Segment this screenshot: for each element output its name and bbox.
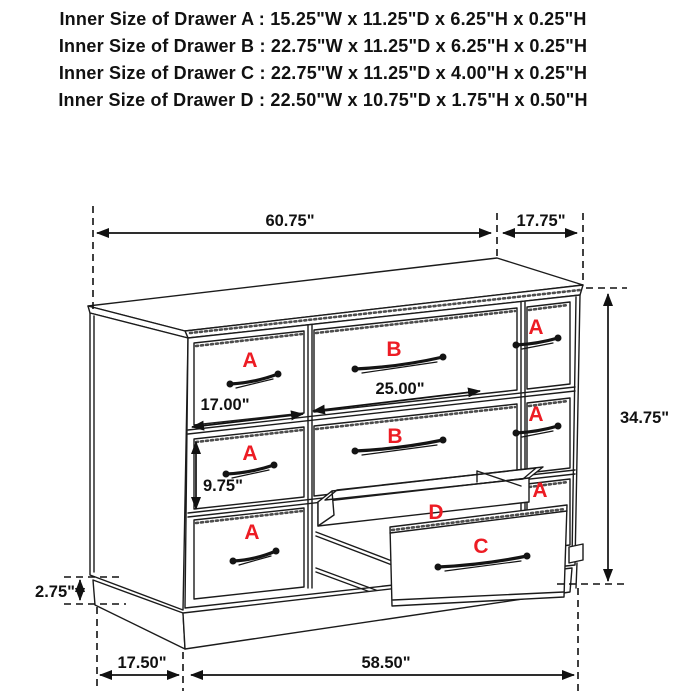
product-dimension-sheet: Inner Size of Drawer A : 15.25"W x 11.25… xyxy=(0,0,700,700)
dresser-dimension-diagram: A B A A B A A A D C xyxy=(0,0,700,700)
dimension-base-depth: 17.50" xyxy=(100,654,179,675)
drawer-a-label: A xyxy=(528,316,543,339)
top-depth-value: 17.75" xyxy=(516,212,565,230)
dimension-top-depth: 17.75" xyxy=(503,212,577,233)
drawer-d-label: D xyxy=(428,501,443,524)
dimension-base-height: 2.75" xyxy=(35,580,80,601)
base-height-value: 2.75" xyxy=(35,583,75,601)
drawer-a-label: A xyxy=(528,403,543,426)
base-width-value: 58.50" xyxy=(361,654,410,672)
base-depth-value: 17.50" xyxy=(117,654,166,672)
drawer-a-height-value: 9.75" xyxy=(203,477,243,495)
top-width-value: 60.75" xyxy=(265,212,314,230)
drawer-a-label: A xyxy=(242,442,257,465)
cabinet-left-side xyxy=(90,313,188,610)
drawer-c-label: C xyxy=(473,535,488,558)
height-value: 34.75" xyxy=(620,409,669,427)
drawer-a-label: A xyxy=(532,479,547,502)
dimension-top-width: 60.75" xyxy=(97,212,491,233)
dimension-base-width: 58.50" xyxy=(191,654,574,675)
dimension-height: 34.75" xyxy=(608,294,669,581)
drawer-a-width-value: 17.00" xyxy=(200,396,249,414)
drawer-a-label: A xyxy=(244,521,259,544)
drawer-a-label: A xyxy=(242,349,257,372)
drawer-b-label: B xyxy=(387,425,402,448)
drawer-b-width-value: 25.00" xyxy=(375,380,424,398)
drawer-b-label: B xyxy=(386,338,401,361)
dresser-drawing: A B A A B A A A D C xyxy=(88,258,583,649)
